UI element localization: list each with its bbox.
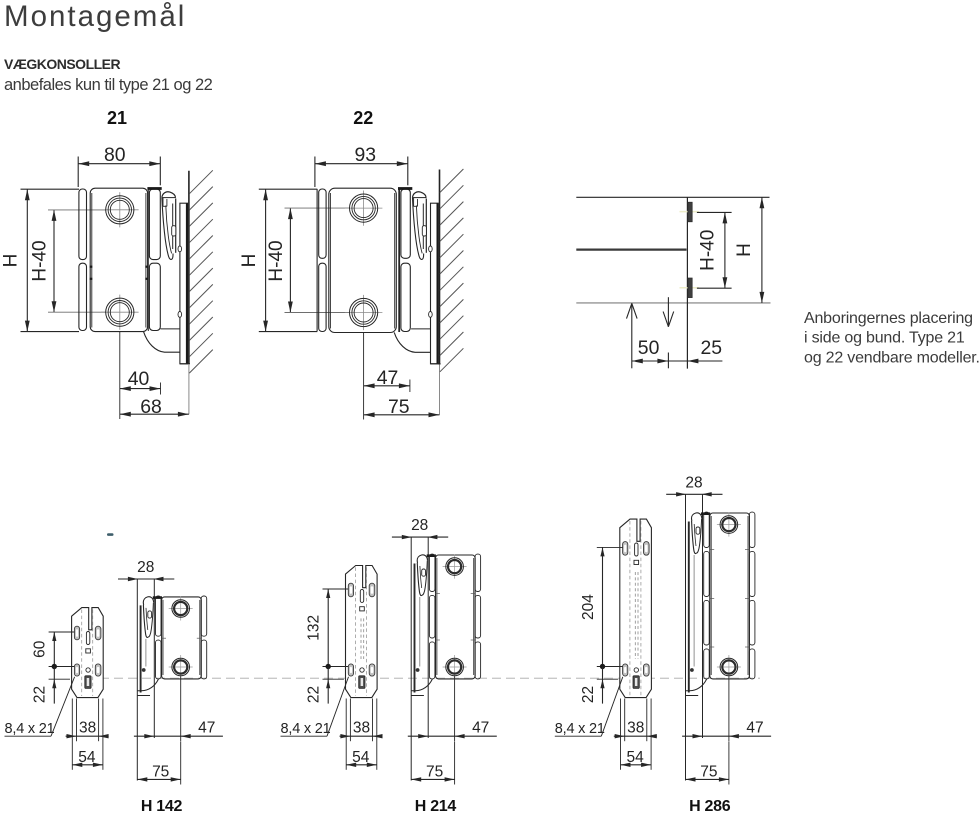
svg-text:47: 47 [746,719,763,736]
svg-text:50: 50 [638,337,660,359]
svg-text:75: 75 [426,763,443,780]
svg-text:132: 132 [306,615,323,641]
svg-text:H-40: H-40 [697,230,718,271]
svg-text:38: 38 [353,719,370,736]
svg-text:204: 204 [580,594,597,620]
svg-text:H-40: H-40 [266,240,287,281]
svg-text:8,4 x 21: 8,4 x 21 [555,721,605,737]
svg-text:H: H [1,254,22,268]
svg-text:22: 22 [306,686,323,703]
svg-text:28: 28 [411,517,428,534]
svg-text:22: 22 [580,686,597,703]
svg-text:Montagemål: Montagemål [4,0,186,33]
svg-text:H: H [734,243,755,257]
svg-text:93: 93 [355,144,377,166]
svg-text:40: 40 [128,368,150,390]
svg-text:60: 60 [32,640,49,658]
svg-text:47: 47 [198,719,215,736]
svg-text:22: 22 [353,108,373,128]
svg-text:8,4 x 21: 8,4 x 21 [281,721,331,737]
svg-text:VÆGKONSOLLER: VÆGKONSOLLER [4,56,121,72]
svg-text:28: 28 [685,474,702,491]
svg-text:H: H [239,254,260,268]
svg-text:anbefales kun til type 21 og 2: anbefales kun til type 21 og 22 [4,76,213,94]
svg-text:H 142: H 142 [141,798,183,815]
svg-text:28: 28 [137,559,154,576]
svg-text:47: 47 [472,719,489,736]
svg-text:25: 25 [701,337,723,359]
svg-text:H 214: H 214 [415,798,457,815]
svg-text:80: 80 [104,144,126,166]
svg-text:38: 38 [79,719,96,736]
svg-text:i side og bund. Type 21: i side og bund. Type 21 [804,330,965,347]
svg-text:68: 68 [140,396,162,418]
svg-text:H-40: H-40 [30,240,51,281]
svg-text:H 286: H 286 [689,798,731,815]
svg-text:21: 21 [107,108,127,128]
svg-text:22: 22 [32,686,49,703]
svg-text:Anboringernes placering: Anboringernes placering [804,310,973,327]
svg-text:75: 75 [700,763,717,780]
svg-text:75: 75 [152,763,169,780]
svg-text:og 22 vendbare modeller.: og 22 vendbare modeller. [804,349,980,366]
svg-text:8,4 x 21: 8,4 x 21 [5,721,55,737]
svg-text:38: 38 [627,719,644,736]
